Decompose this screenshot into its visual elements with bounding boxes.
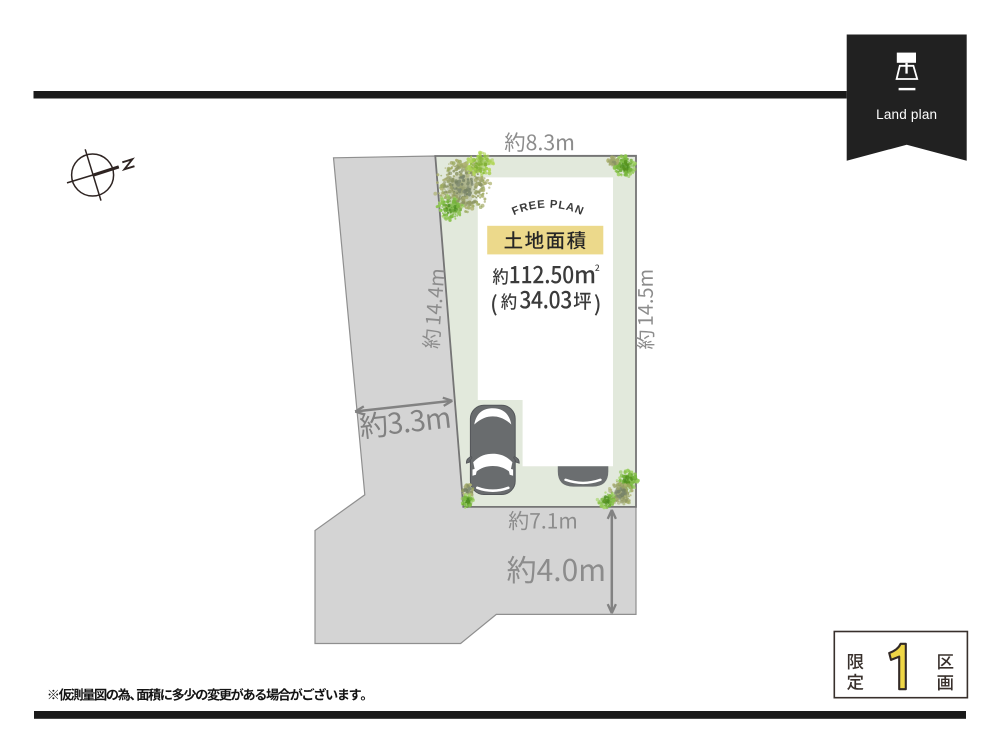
svg-text:Land plan: Land plan [876,107,937,122]
